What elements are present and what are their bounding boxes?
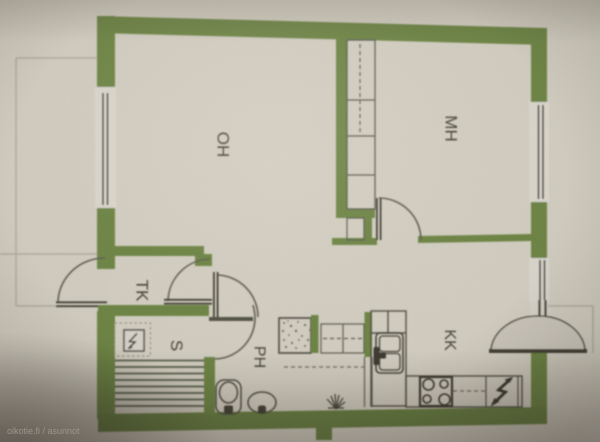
svg-text:oikotie.fi / asunnot: oikotie.fi / asunnot (7, 426, 80, 436)
